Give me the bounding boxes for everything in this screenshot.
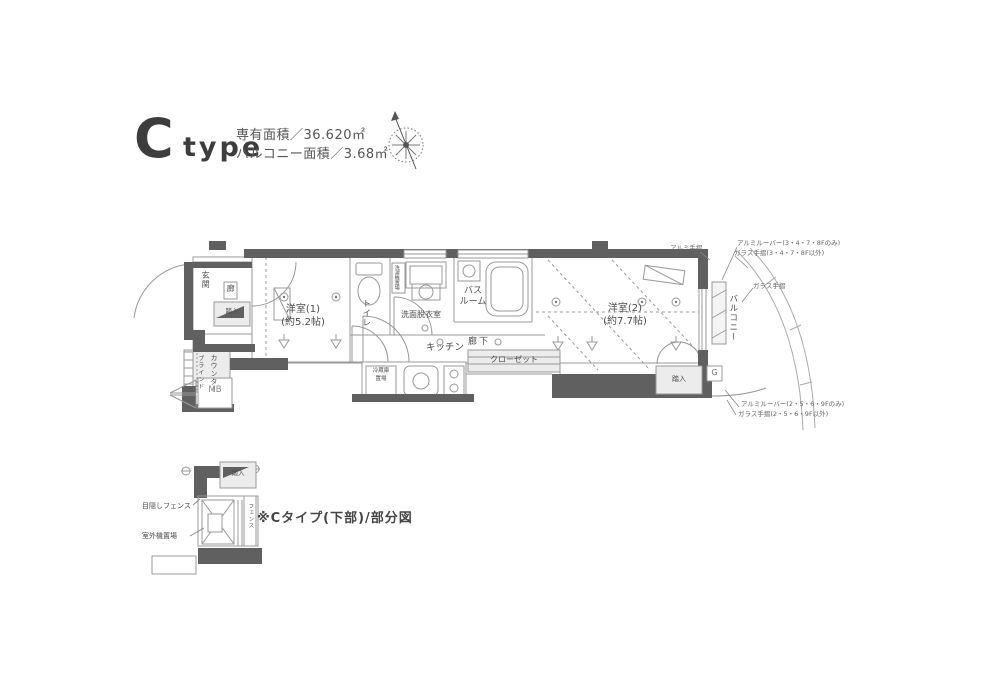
- fridge-label-line1: 冷蔵庫: [366, 368, 396, 374]
- washroom-label: 洗面脱衣室: [388, 310, 454, 319]
- toilet-label: トイレ: [360, 299, 370, 328]
- partial-diagram-drawing: [152, 462, 262, 574]
- bathroom-label-line2: ルーム: [455, 297, 491, 307]
- entry-step-label: 踏入: [214, 308, 250, 315]
- type-letter: C: [134, 108, 174, 170]
- partial-caption: ※Cタイプ(下部)/部分図: [257, 512, 413, 527]
- balcony-area-text: バルコニー面積／3.68㎡: [236, 148, 388, 163]
- fence-strip-label: フェンス: [247, 503, 253, 529]
- meter-box-label: MB: [198, 386, 232, 396]
- floorplan-page: C type 専有面積／36.620㎡ バルコニー面積／3.68㎡ 玄関 廊 踏…: [0, 0, 1000, 679]
- hallway-label: 廊下: [468, 337, 490, 347]
- balcony-label: バルコニー: [727, 294, 737, 342]
- blind-label: ブラインド: [196, 355, 203, 390]
- closet-label: クローゼット: [468, 355, 560, 364]
- aluminum-rail-note: アルミ手摺: [670, 245, 702, 252]
- room2-label: 洋室(2): [580, 303, 670, 315]
- louver-bottom-note: アルミルーバー(2・5・6・9Fのみ): [741, 401, 844, 408]
- kitchen-label: キッチン: [417, 343, 473, 354]
- glass-rail-top-note: ガラス手摺(3・4・7・8F以外): [734, 250, 824, 257]
- floor-plan-drawing: [0, 0, 1000, 679]
- glass-rail-bottom-note: ガラス手摺(2・5・6・9F以外): [738, 411, 828, 418]
- entrance-label: 玄関: [201, 271, 210, 289]
- room1-size-label: (約5.2帖): [266, 317, 340, 329]
- privacy-fence-label: 目隠しフェンス: [142, 502, 191, 510]
- gas-meter-label: G: [707, 368, 722, 377]
- bathroom-label-line1: バス: [455, 286, 491, 296]
- compass-rose-icon: [389, 111, 423, 169]
- entry-step2-label: 踏入: [656, 375, 702, 383]
- hall-kanji-label: 廊: [226, 284, 235, 293]
- louver-top-note: アルミルーバー(3・4・7・8Fのみ): [737, 240, 840, 247]
- room2-size-label: (約7.7帖): [580, 316, 670, 328]
- laundry-label: 洗濯機置場: [393, 265, 399, 290]
- glass-rail-note: ガラス手摺: [753, 283, 785, 290]
- room1-label: 洋室(1): [266, 304, 340, 316]
- outdoor-unit-label: 室外機置場: [142, 532, 177, 540]
- partial-entry-step-label: 踏入: [220, 470, 256, 477]
- exclusive-area-text: 専有面積／36.620㎡: [236, 129, 366, 144]
- fridge-label-line2: 置場: [366, 376, 396, 382]
